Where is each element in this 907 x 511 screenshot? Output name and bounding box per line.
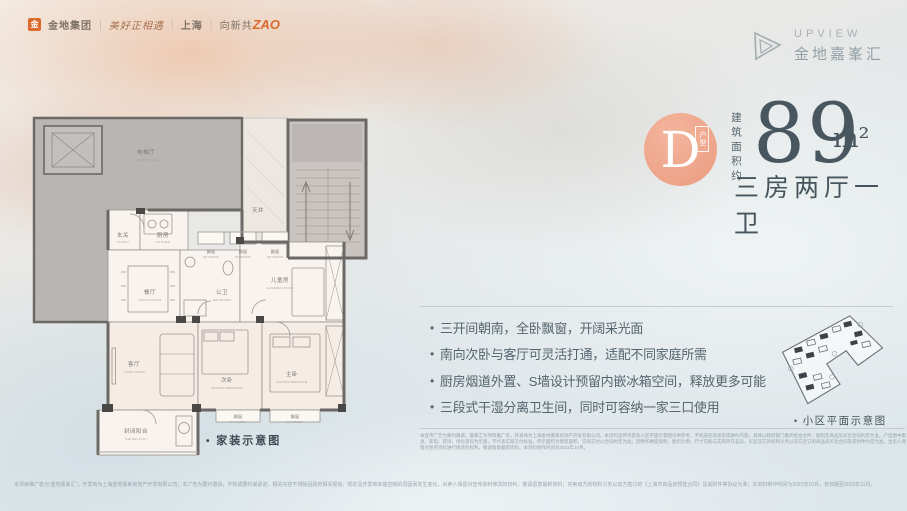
svg-text:客厅: 客厅 xyxy=(128,360,140,368)
feature-item: 南向次卧与客厅可灵活打通，适配不同家庭所需 xyxy=(430,341,775,368)
svg-text:主卧: 主卧 xyxy=(286,370,298,378)
floorplan-caption: 家装示意图 xyxy=(206,432,281,448)
separator: | xyxy=(210,19,213,31)
svg-text:电梯厅: 电梯厅 xyxy=(137,148,155,156)
divider xyxy=(420,306,893,307)
slogan-text: 美好正相遇 xyxy=(109,17,164,32)
svg-text:飘窗: 飘窗 xyxy=(291,413,299,420)
feature-item: 厨房烟道外置、S墙设计预留内嵌冰箱空间，释放更多可能 xyxy=(430,367,775,394)
room-master xyxy=(262,322,344,410)
svg-text:SECOND BEDROOM: SECOND BEDROOM xyxy=(211,386,243,390)
svg-text:BAY WINDOW: BAY WINDOW xyxy=(203,256,219,259)
disclaimer-block: 本宣传广告为要约邀请，嘉峯汇为项目推广名，开发商为上海金地嘉峯房地产开发有限公司… xyxy=(420,433,906,451)
svg-text:BATHROOM: BATHROOM xyxy=(213,298,232,302)
light-well xyxy=(242,118,288,242)
room-bath xyxy=(180,250,240,322)
upview-logo: UPVIEW 金地嘉峯汇 xyxy=(752,28,884,64)
siteplan-diagram xyxy=(768,310,905,412)
svg-text:封闭阳台: 封闭阳台 xyxy=(124,427,148,435)
room-porch xyxy=(108,210,140,250)
svg-text:LIVING ROOM: LIVING ROOM xyxy=(123,370,145,374)
svg-text:ELEVATOR HALL: ELEVATOR HALL xyxy=(133,158,159,162)
svg-text:BAY WINDOW: BAY WINDOW xyxy=(267,256,283,259)
svg-text:MASTER BEDROOM: MASTER BEDROOM xyxy=(276,380,307,384)
room-second xyxy=(198,322,262,410)
svg-text:飘窗: 飘窗 xyxy=(207,248,215,255)
svg-text:公卫: 公卫 xyxy=(216,289,228,296)
svg-text:PORCH: PORCH xyxy=(117,240,129,244)
svg-text:BAY WINDOW: BAY WINDOW xyxy=(235,256,251,259)
svg-text:天井: 天井 xyxy=(252,206,264,214)
upview-wordmark: UPVIEW xyxy=(794,28,884,40)
bay-window xyxy=(198,232,224,244)
siteplan-caption: 小区平面示意图 xyxy=(794,413,887,428)
svg-text:玄关: 玄关 xyxy=(117,231,129,239)
svg-text:飘窗: 飘窗 xyxy=(271,248,279,255)
separator: | xyxy=(171,19,174,31)
svg-text:飘窗: 飘窗 xyxy=(234,413,242,420)
layout-text: 三房两厅一卫 xyxy=(734,168,907,240)
room-living xyxy=(108,322,198,410)
project-name: 金地嘉峯汇 xyxy=(794,43,884,64)
svg-text:CHILDREN ROOM: CHILDREN ROOM xyxy=(266,286,294,290)
svg-text:餐厅: 餐厅 xyxy=(144,288,156,296)
svg-text:DINING ROOM: DINING ROOM xyxy=(139,298,162,302)
room-kitchen xyxy=(140,210,188,250)
logo-bar: 金 金地集团 | 美好正相遇 | 上海 | 向新共ZAO xyxy=(28,17,280,32)
svg-text:飘窗: 飘窗 xyxy=(239,248,247,255)
svg-text:THE BALCONY: THE BALCONY xyxy=(124,437,147,441)
prism-icon xyxy=(752,28,784,64)
svg-text:KITCHEN: KITCHEN xyxy=(156,240,170,244)
svg-text:BAY WINDOW: BAY WINDOW xyxy=(287,421,303,424)
gemdale-logo-icon: 金 xyxy=(28,18,41,31)
city-text: 上海 xyxy=(181,17,203,32)
floorplan-diagram: 电梯厅 ELEVATOR HALL 天井 玄关 PORCH 厨房 KITCHEN… xyxy=(30,110,370,462)
unit-tag: 户型 xyxy=(695,126,709,152)
disclaimer-line: 本项目推广名为“金地嘉峯汇”，开发商为上海金地嘉峯房地产开发有限公司；本广告为要… xyxy=(14,481,894,488)
siteplan-boundary xyxy=(778,310,891,406)
feature-item: 三开间朝南，全卧飘窗，开阔采光面 xyxy=(430,314,775,341)
separator: | xyxy=(99,19,102,31)
rooms xyxy=(98,210,344,455)
developer-brand-text: 金地集团 xyxy=(48,17,92,32)
room-dining xyxy=(108,250,180,322)
stairwell xyxy=(288,120,366,258)
svg-text:儿童房: 儿童房 xyxy=(271,276,289,284)
poster-page: 金 金地集团 | 美好正相遇 | 上海 | 向新共ZAO UPVIEW 金地嘉峯… xyxy=(0,0,907,511)
campaign-accent-text: ZAO xyxy=(253,17,280,32)
features-list: 三开间朝南，全卧飘窗，开阔采光面 南向次卧与客厅可灵活打通，适配不同家庭所需 厨… xyxy=(430,314,775,420)
svg-text:厨房: 厨房 xyxy=(157,231,169,239)
area-unit: m² xyxy=(833,123,869,154)
campaign-text: 向新共ZAO xyxy=(220,17,280,32)
svg-text:次卧: 次卧 xyxy=(221,376,233,384)
divider xyxy=(420,428,905,429)
svg-text:BAY WINDOW: BAY WINDOW xyxy=(230,421,246,424)
feature-item: 三段式干湿分离卫生间，同时可容纳一家三口使用 xyxy=(430,394,775,421)
